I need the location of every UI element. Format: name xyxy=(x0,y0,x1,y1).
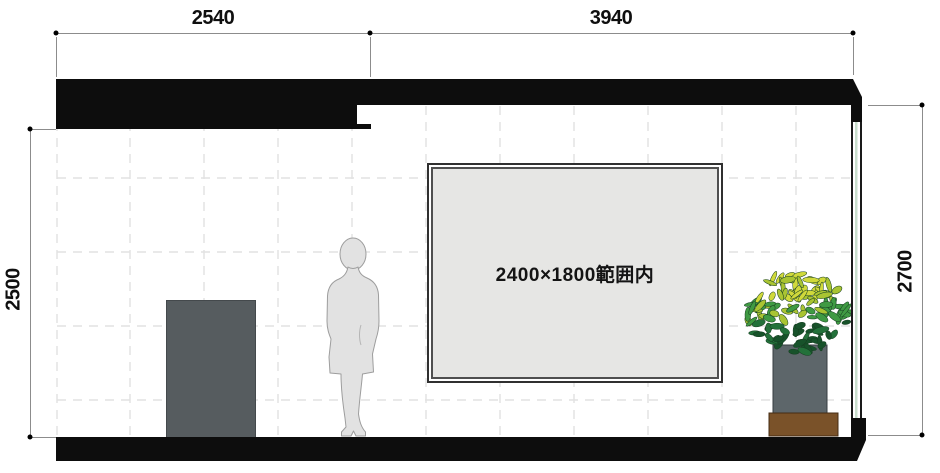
planter-pot xyxy=(773,345,827,413)
dim-tick xyxy=(28,127,33,132)
dim-tick xyxy=(54,31,59,36)
dim-tick xyxy=(920,103,925,108)
dim-label-right: 2700 xyxy=(895,222,918,322)
dim-label-top-right: 3940 xyxy=(561,7,661,30)
dim-label-left: 2500 xyxy=(3,240,26,340)
dim-line-top xyxy=(56,33,854,34)
pedestal xyxy=(167,301,255,437)
dim-extension xyxy=(32,437,56,438)
ceiling-bulkhead-left xyxy=(56,79,357,129)
panel-size-label: 2400×1800範囲内 xyxy=(496,260,655,287)
dim-tick xyxy=(920,433,925,438)
dim-line-left xyxy=(30,129,31,437)
display-area-panel: 2400×1800範囲内 xyxy=(427,163,723,383)
dim-extension xyxy=(56,37,57,77)
dim-line-right xyxy=(922,105,923,435)
planter-base xyxy=(769,413,838,436)
dim-extension xyxy=(868,105,920,106)
plant-foliage xyxy=(743,271,853,358)
bulkhead-lip xyxy=(357,124,371,129)
elevation-drawing: 2400×1800範囲内 2540 3940 2500 2700 xyxy=(0,0,940,473)
dim-extension xyxy=(370,37,371,77)
potted-plant xyxy=(740,265,855,440)
dim-tick xyxy=(28,435,33,440)
panel-inner-frame: 2400×1800範囲内 xyxy=(431,167,719,379)
dim-tick xyxy=(368,31,373,36)
dim-label-top-left: 2540 xyxy=(163,7,263,30)
dim-extension xyxy=(853,37,854,75)
dim-extension xyxy=(32,129,56,130)
person-silhouette xyxy=(318,233,388,437)
dim-tick xyxy=(851,31,856,36)
dim-extension xyxy=(868,435,920,436)
window-glazing xyxy=(851,122,862,418)
